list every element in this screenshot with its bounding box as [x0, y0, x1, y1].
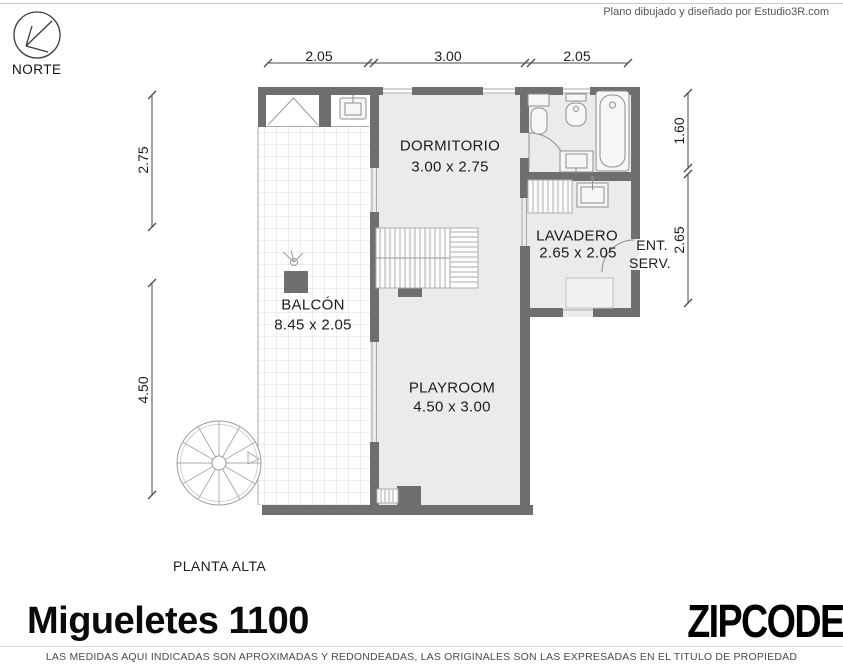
room-size-lavadero: 2.65 x 2.05 — [539, 245, 617, 262]
north-label: NORTE — [12, 62, 62, 77]
room-name-dormitorio: DORMITORIO — [400, 138, 500, 155]
dim-right-1: 1.60 — [671, 117, 687, 144]
floorplan-page: Plano dibujado y diseñado por Estudio3R.… — [0, 0, 843, 670]
playroom-steps — [377, 489, 398, 503]
brand-logo: ZIPCODE — [687, 594, 843, 648]
floor-label: PLANTA ALTA — [173, 558, 266, 574]
spiral-staircase — [177, 421, 261, 505]
room-name-balcon: BALCÓN — [281, 297, 345, 314]
dim-top-1: 2.05 — [305, 48, 332, 64]
room-size-playroom: 4.50 x 3.00 — [413, 399, 491, 416]
room-name-lavadero: LAVADERO — [536, 228, 618, 245]
floorplan-drawing — [0, 0, 843, 670]
dim-left-2: 4.50 — [135, 376, 151, 403]
service-entrance-line2: SERV. — [629, 255, 671, 271]
room-size-dormitorio: 3.00 x 2.75 — [411, 159, 489, 176]
dim-top-2: 3.00 — [434, 48, 461, 64]
main-staircase — [376, 228, 478, 288]
dim-top-3: 2.05 — [563, 48, 590, 64]
footer-rule — [0, 646, 843, 647]
room-name-playroom: PLAYROOM — [409, 380, 495, 397]
service-landing — [566, 278, 613, 308]
disclaimer-text: LAS MEDIDAS AQUI INDICADAS SON APROXIMAD… — [0, 651, 843, 663]
dim-right-2: 2.65 — [671, 226, 687, 253]
service-entrance-line1: ENT. — [636, 237, 668, 253]
lavadero-staircase — [528, 180, 572, 213]
dim-left-1: 2.75 — [135, 146, 151, 173]
room-size-balcon: 8.45 x 2.05 — [274, 317, 352, 334]
north-arrow-icon — [14, 12, 60, 58]
address-title: Migueletes 1100 — [27, 600, 309, 643]
